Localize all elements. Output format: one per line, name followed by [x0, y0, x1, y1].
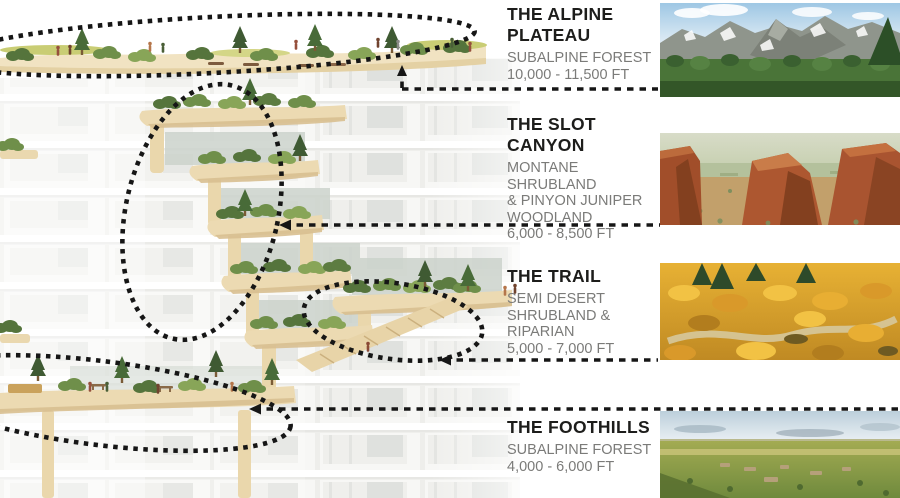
alpine-mountains-photo: [660, 3, 900, 97]
section-habitat: SEMI DESERT SHRUBLAND & RIPARIAN: [507, 291, 659, 341]
section-slot-canyon: THE SLOT CANYON MONTANE SHRUBLAND & PINY…: [507, 114, 659, 243]
section-title: THE TRAIL: [507, 266, 659, 287]
section-title: THE SLOT CANYON: [507, 114, 659, 156]
section-habitat: SUBALPINE FOREST: [507, 50, 659, 67]
section-alpine-plateau: THE ALPINE PLATEAU SUBALPINE FOREST 10,0…: [507, 4, 659, 83]
section-habitat: MONTANE SHRUBLAND & PINYON JUNIPER WOODL…: [507, 160, 659, 226]
rooftop-garden: [0, 24, 487, 74]
section-title: THE ALPINE PLATEAU: [507, 4, 659, 46]
red-rock-canyon-photo: [660, 133, 900, 225]
grassland-plains-photo: [660, 411, 900, 498]
section-elevation: 6,000 - 8,500 FT: [507, 226, 659, 243]
golden-shrubland-photo: [660, 263, 900, 360]
section-elevation: 5,000 - 7,000 FT: [507, 341, 659, 358]
section-foothills: THE FOOTHILLS SUBALPINE FOREST 4,000 - 6…: [507, 417, 659, 475]
section-elevation: 10,000 - 11,500 FT: [507, 67, 659, 84]
section-elevation: 4,000 - 6,000 FT: [507, 459, 659, 476]
section-title: THE FOOTHILLS: [507, 417, 659, 438]
section-habitat: SUBALPINE FOREST: [507, 442, 659, 459]
slide-canvas: THE ALPINE PLATEAU SUBALPINE FOREST 10,0…: [0, 0, 900, 498]
section-trail: THE TRAIL SEMI DESERT SHRUBLAND & RIPARI…: [507, 266, 659, 357]
